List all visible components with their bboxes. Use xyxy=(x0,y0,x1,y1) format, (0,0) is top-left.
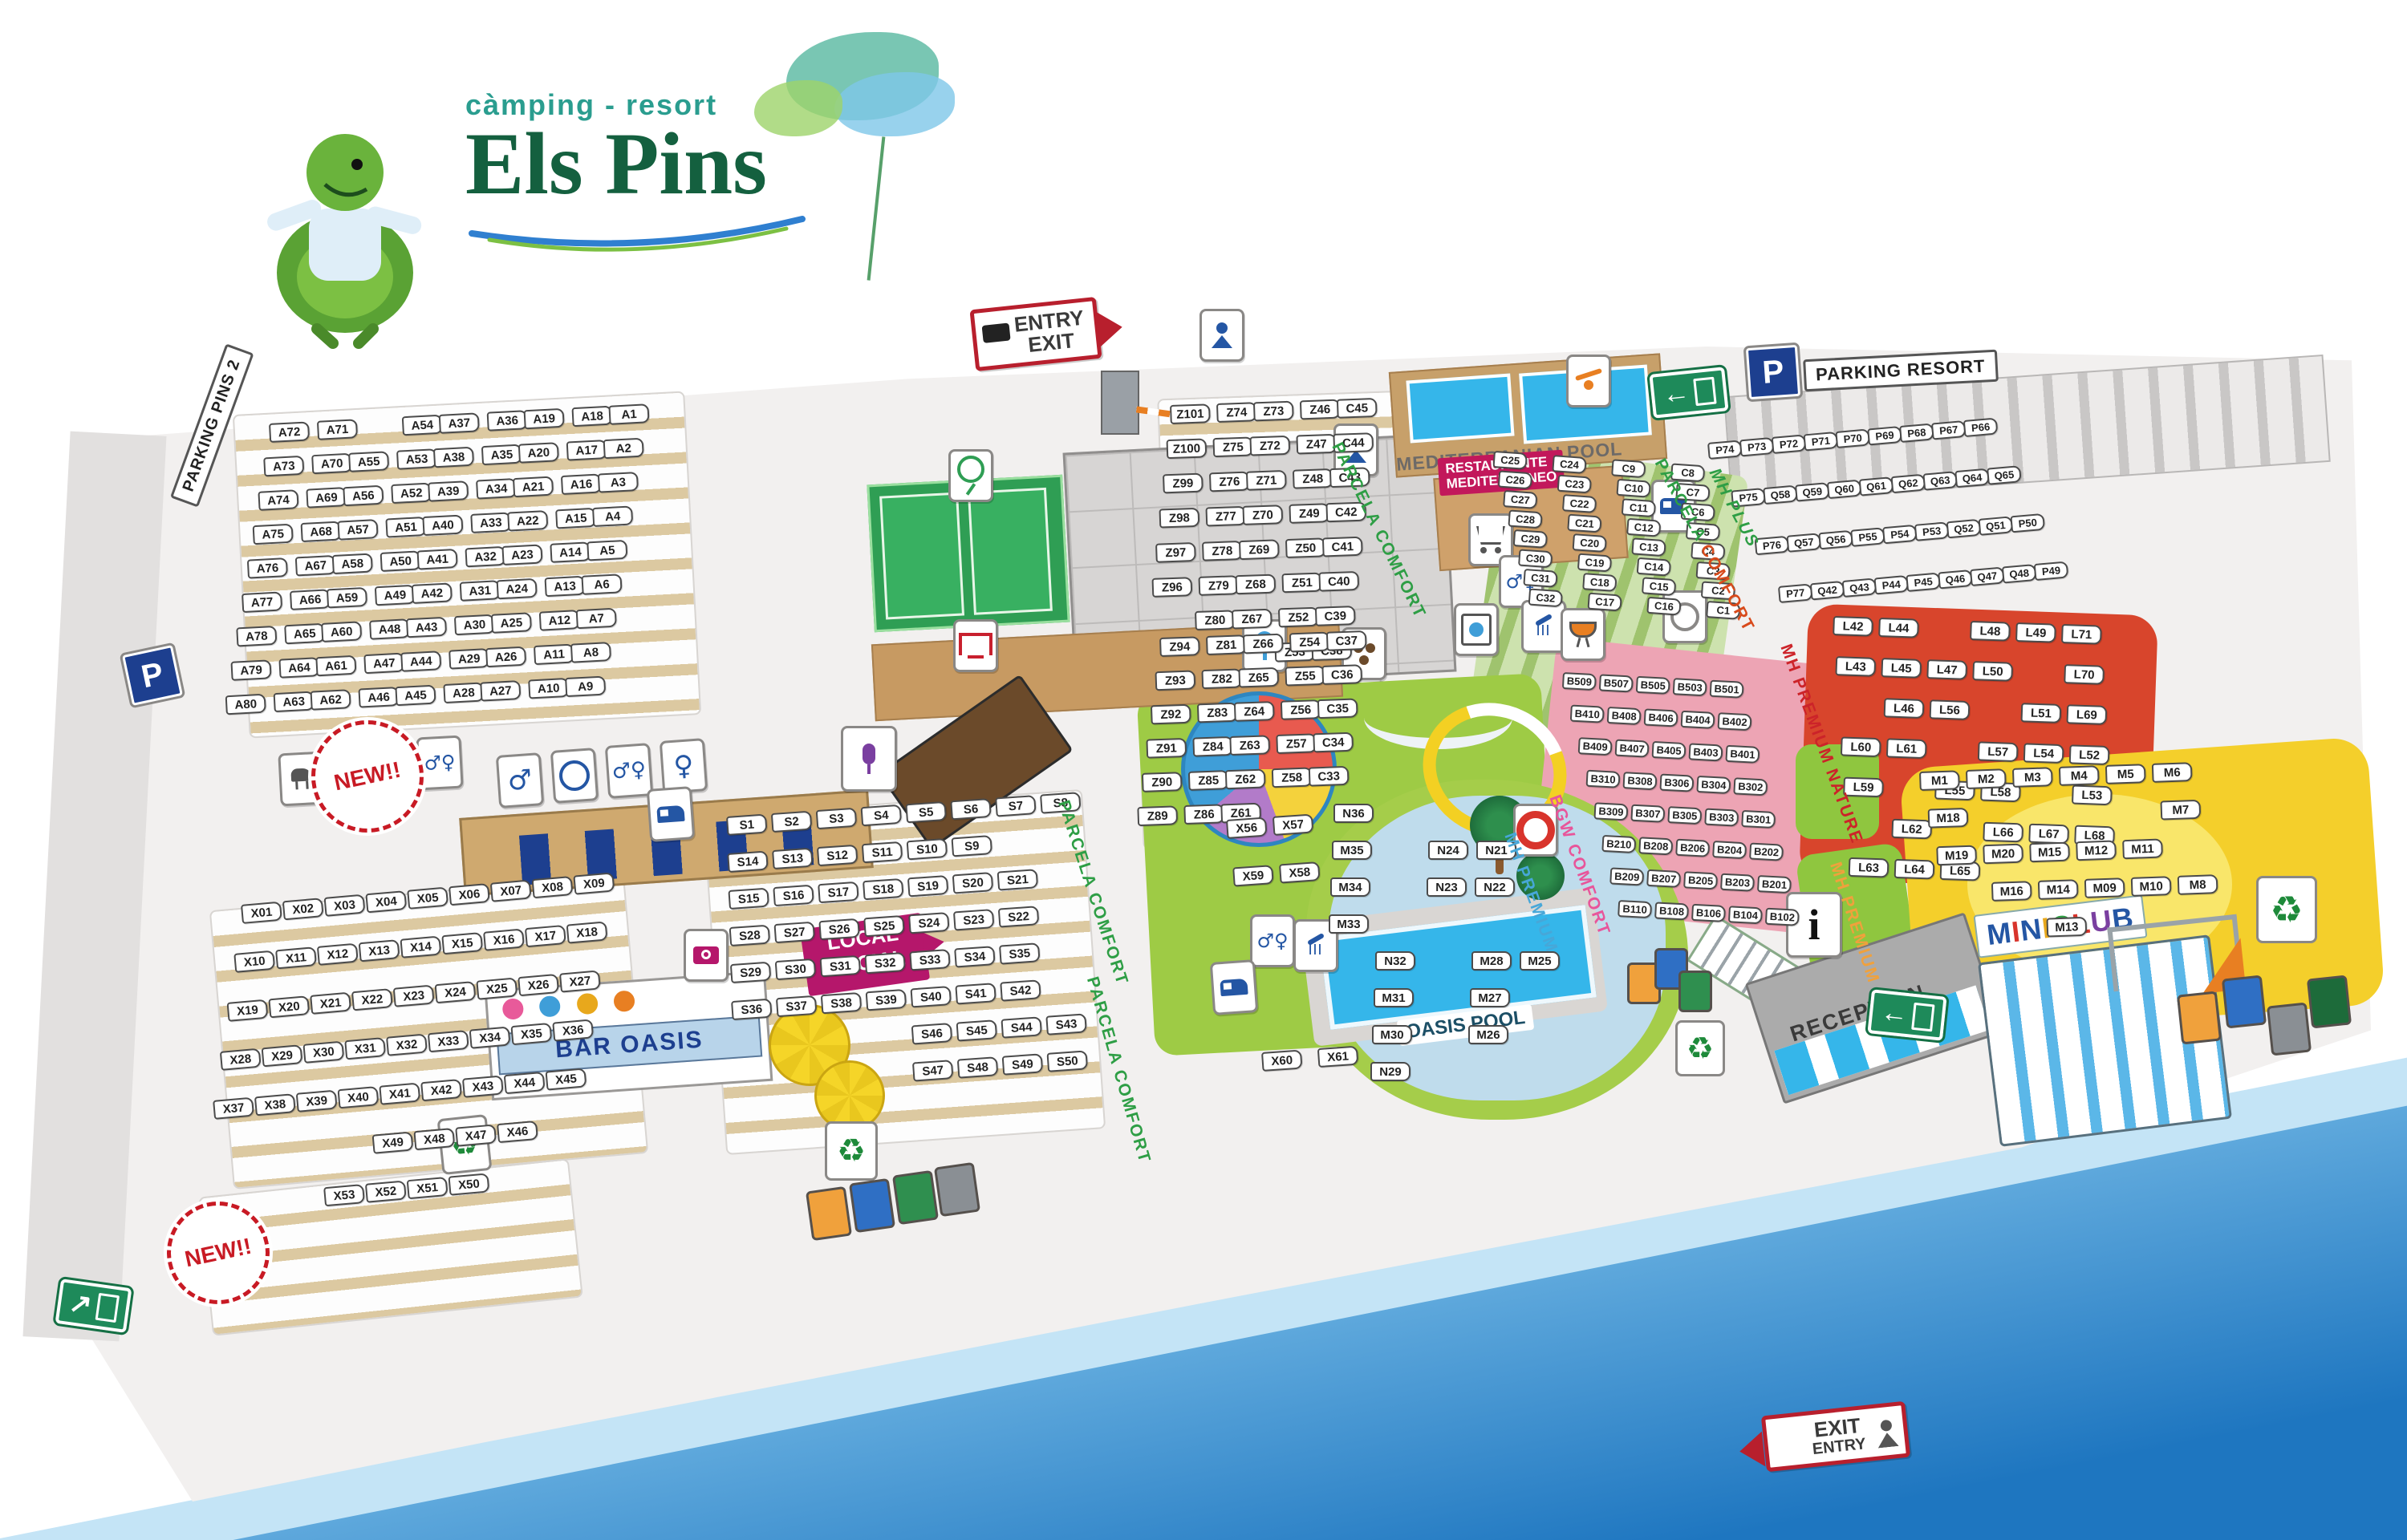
pitch-A10[interactable]: A10 xyxy=(528,678,569,699)
pitch-M8[interactable]: M8 xyxy=(2178,874,2218,895)
pitch-A19[interactable]: A19 xyxy=(524,408,565,430)
pitch-B208[interactable]: B208 xyxy=(1638,837,1673,855)
pitch-S27[interactable]: S27 xyxy=(774,922,816,943)
pitch-P72[interactable]: P72 xyxy=(1772,434,1807,454)
pitch-A53[interactable]: A53 xyxy=(396,448,437,470)
pitch-Q56[interactable]: Q56 xyxy=(1818,530,1853,550)
pitch-B102[interactable]: B102 xyxy=(1765,908,1800,926)
pitch-B405[interactable]: B405 xyxy=(1652,741,1687,760)
pitch-A5[interactable]: A5 xyxy=(587,540,627,561)
pitch-L70[interactable]: L70 xyxy=(2064,664,2105,685)
pitch-Q60[interactable]: Q60 xyxy=(1827,480,1862,500)
pitch-A69[interactable]: A69 xyxy=(306,487,347,509)
pitch-Z76[interactable]: Z76 xyxy=(1209,472,1250,492)
pitch-Z92[interactable]: Z92 xyxy=(1151,704,1191,725)
pitch-N36[interactable]: N36 xyxy=(1333,804,1374,823)
pitch-L62[interactable]: L62 xyxy=(1891,819,1932,840)
pitch-A38[interactable]: A38 xyxy=(433,447,474,468)
pitch-C14[interactable]: C14 xyxy=(1637,557,1671,577)
pitch-A61[interactable]: A61 xyxy=(315,655,356,677)
pitch-C15[interactable]: C15 xyxy=(1642,577,1676,596)
pitch-B505[interactable]: B505 xyxy=(1636,676,1670,695)
pitch-C24[interactable]: C24 xyxy=(1552,455,1586,474)
pitch-C22[interactable]: C22 xyxy=(1562,494,1597,513)
pitch-X42[interactable]: X42 xyxy=(420,1079,462,1101)
pitch-Z79[interactable]: Z79 xyxy=(1198,575,1239,596)
pitch-Z49[interactable]: Z49 xyxy=(1289,503,1329,524)
pitch-B204[interactable]: B204 xyxy=(1712,841,1747,859)
pitch-S28[interactable]: S28 xyxy=(729,925,771,946)
pitch-X27[interactable]: X27 xyxy=(559,970,601,992)
pitch-A32[interactable]: A32 xyxy=(465,546,505,568)
pitch-B108[interactable]: B108 xyxy=(1654,902,1689,920)
pitch-A29[interactable]: A29 xyxy=(449,648,489,670)
pitch-A16[interactable]: A16 xyxy=(561,473,602,495)
pitch-Z70[interactable]: Z70 xyxy=(1242,505,1283,525)
pitch-X34[interactable]: X34 xyxy=(469,1026,511,1048)
pitch-B306[interactable]: B306 xyxy=(1659,774,1694,792)
pitch-P66[interactable]: P66 xyxy=(1963,417,1999,437)
pitch-A71[interactable]: A71 xyxy=(317,419,358,440)
pitch-Z96[interactable]: Z96 xyxy=(1152,577,1193,598)
pitch-X39[interactable]: X39 xyxy=(296,1090,338,1112)
pitch-S47[interactable]: S47 xyxy=(912,1060,954,1081)
pitch-P73[interactable]: P73 xyxy=(1739,437,1775,457)
pitch-C41[interactable]: C41 xyxy=(1322,537,1363,557)
pitch-A56[interactable]: A56 xyxy=(343,485,384,507)
pitch-X50[interactable]: X50 xyxy=(449,1173,490,1195)
pitch-Z78[interactable]: Z78 xyxy=(1202,541,1243,561)
pitch-A8[interactable]: A8 xyxy=(570,642,611,663)
pitch-A36[interactable]: A36 xyxy=(487,410,528,432)
pitch-P69[interactable]: P69 xyxy=(1867,426,1902,446)
pitch-Z55[interactable]: Z55 xyxy=(1285,666,1325,687)
pitch-A25[interactable]: A25 xyxy=(491,612,532,634)
pitch-Z74[interactable]: Z74 xyxy=(1216,402,1257,423)
pitch-Z81[interactable]: Z81 xyxy=(1206,634,1247,655)
pitch-Z58[interactable]: Z58 xyxy=(1272,767,1313,788)
pitch-A54[interactable]: A54 xyxy=(402,415,443,436)
pitch-A14[interactable]: A14 xyxy=(550,541,591,563)
pitch-C29[interactable]: C29 xyxy=(1513,529,1548,549)
pitch-Z54[interactable]: Z54 xyxy=(1289,632,1330,653)
pitch-A62[interactable]: A62 xyxy=(311,689,351,711)
pitch-Z62[interactable]: Z62 xyxy=(1225,769,1266,790)
pitch-S13[interactable]: S13 xyxy=(772,848,814,869)
pitch-M16[interactable]: M16 xyxy=(1991,881,2032,902)
pitch-B210[interactable]: B210 xyxy=(1601,835,1636,853)
pitch-X48[interactable]: X48 xyxy=(413,1128,455,1150)
pitch-L48[interactable]: L48 xyxy=(1970,621,2011,642)
pitch-L43[interactable]: L43 xyxy=(1835,656,1876,677)
pitch-S50[interactable]: S50 xyxy=(1047,1050,1089,1072)
pitch-C20[interactable]: C20 xyxy=(1573,533,1607,553)
pitch-S19[interactable]: S19 xyxy=(907,875,949,897)
pitch-A64[interactable]: A64 xyxy=(278,657,319,679)
pitch-N22[interactable]: N22 xyxy=(1475,877,1515,897)
pitch-M35[interactable]: M35 xyxy=(1332,841,1372,860)
pitch-A51[interactable]: A51 xyxy=(385,517,426,538)
pitch-A49[interactable]: A49 xyxy=(375,585,416,606)
pitch-A27[interactable]: A27 xyxy=(480,680,521,702)
pitch-A28[interactable]: A28 xyxy=(443,682,484,703)
pitch-Q57[interactable]: Q57 xyxy=(1786,533,1821,553)
pitch-M12[interactable]: M12 xyxy=(2076,840,2117,861)
pitch-S4[interactable]: S4 xyxy=(861,804,903,826)
pitch-M27[interactable]: M27 xyxy=(1470,988,1510,1007)
pitch-X21[interactable]: X21 xyxy=(310,992,351,1015)
pitch-L47[interactable]: L47 xyxy=(1926,659,1967,680)
pitch-Z52[interactable]: Z52 xyxy=(1278,607,1319,628)
pitch-A44[interactable]: A44 xyxy=(400,650,441,672)
pitch-X08[interactable]: X08 xyxy=(532,876,574,898)
pitch-S3[interactable]: S3 xyxy=(816,808,858,829)
pitch-P49[interactable]: P49 xyxy=(2034,561,2069,581)
pitch-S34[interactable]: S34 xyxy=(954,946,996,967)
pitch-P44[interactable]: P44 xyxy=(1873,575,1909,595)
pitch-X24[interactable]: X24 xyxy=(435,981,477,1003)
pitch-X02[interactable]: X02 xyxy=(282,898,324,920)
pitch-S21[interactable]: S21 xyxy=(997,869,1039,890)
pitch-A13[interactable]: A13 xyxy=(545,576,586,598)
pitch-S35[interactable]: S35 xyxy=(999,942,1041,964)
pitch-S2[interactable]: S2 xyxy=(771,811,813,833)
pitch-S22[interactable]: S22 xyxy=(998,906,1040,927)
pitch-S32[interactable]: S32 xyxy=(864,952,906,974)
pitch-X16[interactable]: X16 xyxy=(483,928,525,950)
pitch-B501[interactable]: B501 xyxy=(1710,680,1744,699)
pitch-A21[interactable]: A21 xyxy=(513,476,554,498)
pitch-C25[interactable]: C25 xyxy=(1493,451,1528,470)
pitch-B402[interactable]: B402 xyxy=(1718,712,1752,731)
pitch-Z91[interactable]: Z91 xyxy=(1146,738,1187,759)
pitch-X10[interactable]: X10 xyxy=(233,950,275,973)
pitch-S31[interactable]: S31 xyxy=(820,955,862,977)
pitch-P53[interactable]: P53 xyxy=(1914,521,1950,541)
pitch-P68[interactable]: P68 xyxy=(1899,423,1934,443)
pitch-B406[interactable]: B406 xyxy=(1644,708,1678,727)
pitch-Z83[interactable]: Z83 xyxy=(1197,703,1238,723)
pitch-Z94[interactable]: Z94 xyxy=(1159,636,1200,657)
pitch-M5[interactable]: M5 xyxy=(2105,764,2146,784)
pitch-C26[interactable]: C26 xyxy=(1498,470,1532,489)
pitch-X41[interactable]: X41 xyxy=(379,1082,420,1104)
pitch-A6[interactable]: A6 xyxy=(581,573,622,595)
pitch-S43[interactable]: S43 xyxy=(1045,1013,1087,1035)
pitch-X31[interactable]: X31 xyxy=(344,1037,386,1060)
pitch-M33[interactable]: M33 xyxy=(1329,914,1369,934)
pitch-N23[interactable]: N23 xyxy=(1427,877,1467,897)
pitch-L57[interactable]: L57 xyxy=(1978,741,2019,762)
pitch-A39[interactable]: A39 xyxy=(428,480,469,502)
pitch-B202[interactable]: B202 xyxy=(1749,842,1784,861)
pitch-L71[interactable]: L71 xyxy=(2061,624,2102,645)
pitch-B205[interactable]: B205 xyxy=(1683,871,1718,890)
pitch-X45[interactable]: X45 xyxy=(546,1068,587,1090)
pitch-X38[interactable]: X38 xyxy=(254,1093,296,1116)
pitch-Z64[interactable]: Z64 xyxy=(1234,701,1275,722)
pitch-Q47[interactable]: Q47 xyxy=(1970,566,2005,586)
pitch-A74[interactable]: A74 xyxy=(258,489,298,511)
pitch-Q42[interactable]: Q42 xyxy=(1810,581,1845,601)
pitch-Z89[interactable]: Z89 xyxy=(1137,805,1178,826)
pitch-Z69[interactable]: Z69 xyxy=(1239,539,1280,560)
pitch-P50[interactable]: P50 xyxy=(2010,513,2045,533)
pitch-X46[interactable]: X46 xyxy=(497,1121,538,1143)
pitch-B209[interactable]: B209 xyxy=(1609,867,1644,885)
pitch-M1[interactable]: M1 xyxy=(1919,770,1960,791)
pitch-S24[interactable]: S24 xyxy=(908,912,950,934)
pitch-C37[interactable]: C37 xyxy=(1326,630,1367,651)
pitch-X32[interactable]: X32 xyxy=(386,1033,428,1056)
pitch-A4[interactable]: A4 xyxy=(592,505,633,527)
pitch-X58[interactable]: X58 xyxy=(1279,861,1321,883)
pitch-L66[interactable]: L66 xyxy=(1983,822,2023,843)
pitch-S18[interactable]: S18 xyxy=(863,878,904,900)
pitch-C31[interactable]: C31 xyxy=(1523,569,1557,588)
pitch-C23[interactable]: C23 xyxy=(1557,475,1592,494)
pitch-A34[interactable]: A34 xyxy=(476,478,517,500)
pitch-M30[interactable]: M30 xyxy=(1372,1025,1412,1044)
pitch-A40[interactable]: A40 xyxy=(422,515,463,537)
pitch-X09[interactable]: X09 xyxy=(573,872,615,894)
pitch-P71[interactable]: P71 xyxy=(1804,432,1839,452)
pitch-S42[interactable]: S42 xyxy=(1000,979,1041,1001)
pitch-L51[interactable]: L51 xyxy=(2021,703,2062,723)
pitch-M11[interactable]: M11 xyxy=(2122,838,2163,859)
pitch-A11[interactable]: A11 xyxy=(534,643,574,665)
pitch-S49[interactable]: S49 xyxy=(1002,1053,1044,1075)
pitch-A1[interactable]: A1 xyxy=(608,403,649,425)
pitch-X52[interactable]: X52 xyxy=(365,1180,407,1202)
pitch-B302[interactable]: B302 xyxy=(1733,777,1768,796)
pitch-B401[interactable]: B401 xyxy=(1725,745,1760,764)
pitch-Z86[interactable]: Z86 xyxy=(1183,804,1224,825)
pitch-A47[interactable]: A47 xyxy=(363,653,404,675)
pitch-C21[interactable]: C21 xyxy=(1567,514,1601,533)
pitch-Q61[interactable]: Q61 xyxy=(1859,476,1894,496)
pitch-Z46[interactable]: Z46 xyxy=(1300,399,1341,420)
pitch-X51[interactable]: X51 xyxy=(407,1177,449,1199)
pitch-P77[interactable]: P77 xyxy=(1778,583,1813,603)
pitch-A46[interactable]: A46 xyxy=(358,687,399,708)
pitch-Q59[interactable]: Q59 xyxy=(1795,482,1830,502)
pitch-X56[interactable]: X56 xyxy=(1226,817,1268,839)
pitch-M3[interactable]: M3 xyxy=(2012,767,2053,788)
pitch-X19[interactable]: X19 xyxy=(227,999,269,1022)
pitch-X15[interactable]: X15 xyxy=(441,932,483,954)
pitch-Q64[interactable]: Q64 xyxy=(1954,468,1990,488)
pitch-A65[interactable]: A65 xyxy=(284,623,325,645)
pitch-X17[interactable]: X17 xyxy=(525,925,566,947)
pitch-A41[interactable]: A41 xyxy=(417,549,458,570)
pitch-Z68[interactable]: Z68 xyxy=(1235,574,1276,595)
pitch-Q62[interactable]: Q62 xyxy=(1891,474,1926,494)
pitch-B410[interactable]: B410 xyxy=(1570,705,1605,723)
pitch-S16[interactable]: S16 xyxy=(773,885,814,906)
pitch-S30[interactable]: S30 xyxy=(775,958,817,980)
pitch-A80[interactable]: A80 xyxy=(225,694,266,715)
pitch-C17[interactable]: C17 xyxy=(1587,593,1622,612)
pitch-P74[interactable]: P74 xyxy=(1707,440,1743,460)
pitch-N29[interactable]: N29 xyxy=(1370,1062,1411,1081)
pitch-S6[interactable]: S6 xyxy=(950,798,992,820)
pitch-S1[interactable]: S1 xyxy=(726,814,768,836)
pitch-S12[interactable]: S12 xyxy=(817,845,858,866)
pitch-M14[interactable]: M14 xyxy=(2038,879,2079,900)
pitch-M10[interactable]: M10 xyxy=(2131,876,2172,897)
pitch-B104[interactable]: B104 xyxy=(1728,906,1763,924)
pitch-X26[interactable]: X26 xyxy=(518,974,559,996)
pitch-L61[interactable]: L61 xyxy=(1886,738,1927,759)
pitch-A35[interactable]: A35 xyxy=(481,444,522,466)
pitch-S23[interactable]: S23 xyxy=(953,909,995,930)
pitch-A78[interactable]: A78 xyxy=(236,626,277,647)
pitch-A63[interactable]: A63 xyxy=(274,691,315,713)
pitch-Q65[interactable]: Q65 xyxy=(1987,465,2022,485)
pitch-Q43[interactable]: Q43 xyxy=(1842,577,1877,598)
pitch-C40[interactable]: C40 xyxy=(1318,571,1359,592)
pitch-B304[interactable]: B304 xyxy=(1696,776,1731,794)
pitch-Z98[interactable]: Z98 xyxy=(1159,508,1200,529)
pitch-A58[interactable]: A58 xyxy=(332,553,373,574)
pitch-Z75[interactable]: Z75 xyxy=(1212,436,1253,457)
pitch-A37[interactable]: A37 xyxy=(439,412,480,434)
pitch-M6[interactable]: M6 xyxy=(2152,762,2193,783)
pitch-Z80[interactable]: Z80 xyxy=(1195,610,1236,630)
pitch-X53[interactable]: X53 xyxy=(323,1184,365,1206)
pitch-X61[interactable]: X61 xyxy=(1317,1046,1359,1068)
pitch-S11[interactable]: S11 xyxy=(862,841,903,863)
pitch-Z97[interactable]: Z97 xyxy=(1155,542,1196,563)
pitch-M31[interactable]: M31 xyxy=(1374,988,1414,1007)
pitch-Z67[interactable]: Z67 xyxy=(1232,609,1273,630)
pitch-P54[interactable]: P54 xyxy=(1882,525,1918,545)
pitch-C19[interactable]: C19 xyxy=(1577,553,1612,573)
pitch-M15[interactable]: M15 xyxy=(2029,842,2070,863)
pitch-A22[interactable]: A22 xyxy=(507,510,548,532)
pitch-P45[interactable]: P45 xyxy=(1906,572,1941,592)
pitch-B404[interactable]: B404 xyxy=(1681,711,1715,729)
pitch-Z101[interactable]: Z101 xyxy=(1170,403,1211,424)
pitch-C18[interactable]: C18 xyxy=(1582,573,1617,592)
pitch-B309[interactable]: B309 xyxy=(1593,802,1628,821)
pitch-B507[interactable]: B507 xyxy=(1599,674,1634,692)
pitch-S48[interactable]: S48 xyxy=(957,1056,999,1078)
pitch-M34[interactable]: M34 xyxy=(1330,877,1370,897)
pitch-C32[interactable]: C32 xyxy=(1528,588,1563,607)
pitch-X29[interactable]: X29 xyxy=(262,1044,303,1067)
pitch-A77[interactable]: A77 xyxy=(242,591,282,613)
pitch-B201[interactable]: B201 xyxy=(1757,875,1792,894)
pitch-X33[interactable]: X33 xyxy=(428,1030,469,1052)
pitch-M28[interactable]: M28 xyxy=(1471,951,1512,971)
pitch-Z99[interactable]: Z99 xyxy=(1163,473,1203,494)
pitch-S20[interactable]: S20 xyxy=(952,872,994,894)
pitch-A33[interactable]: A33 xyxy=(470,512,511,533)
pitch-S36[interactable]: S36 xyxy=(731,999,773,1020)
pitch-A75[interactable]: A75 xyxy=(253,524,294,545)
pitch-C16[interactable]: C16 xyxy=(1646,597,1681,616)
pitch-L42[interactable]: L42 xyxy=(1833,616,1873,637)
pitch-C30[interactable]: C30 xyxy=(1518,549,1553,568)
pitch-A30[interactable]: A30 xyxy=(454,614,495,636)
pitch-X59[interactable]: X59 xyxy=(1232,865,1274,886)
pitch-B307[interactable]: B307 xyxy=(1630,804,1665,823)
pitch-S15[interactable]: S15 xyxy=(728,888,769,910)
pitch-L50[interactable]: L50 xyxy=(1972,661,2013,682)
pitch-A23[interactable]: A23 xyxy=(501,544,542,565)
pitch-A3[interactable]: A3 xyxy=(598,472,639,493)
pitch-X12[interactable]: X12 xyxy=(317,943,359,966)
pitch-X44[interactable]: X44 xyxy=(504,1072,546,1094)
pitch-A26[interactable]: A26 xyxy=(485,646,526,668)
pitch-A20[interactable]: A20 xyxy=(518,442,559,464)
pitch-X49[interactable]: X49 xyxy=(372,1131,414,1153)
pitch-B407[interactable]: B407 xyxy=(1615,740,1650,758)
pitch-X20[interactable]: X20 xyxy=(268,995,310,1018)
pitch-A72[interactable]: A72 xyxy=(269,421,310,443)
pitch-X57[interactable]: X57 xyxy=(1273,813,1314,835)
pitch-S45[interactable]: S45 xyxy=(956,1019,998,1041)
pitch-X04[interactable]: X04 xyxy=(365,890,407,913)
pitch-S46[interactable]: S46 xyxy=(911,1023,953,1044)
pitch-S7[interactable]: S7 xyxy=(995,795,1037,817)
pitch-L53[interactable]: L53 xyxy=(2072,785,2113,806)
pitch-S41[interactable]: S41 xyxy=(955,983,996,1004)
pitch-S38[interactable]: S38 xyxy=(821,992,863,1014)
pitch-X35[interactable]: X35 xyxy=(510,1023,552,1045)
pitch-A73[interactable]: A73 xyxy=(263,456,304,477)
pitch-X47[interactable]: X47 xyxy=(455,1124,497,1146)
pitch-A42[interactable]: A42 xyxy=(412,582,453,604)
pitch-Z73[interactable]: Z73 xyxy=(1253,401,1294,422)
pitch-B203[interactable]: B203 xyxy=(1720,873,1755,892)
pitch-Z77[interactable]: Z77 xyxy=(1205,506,1246,527)
pitch-Z63[interactable]: Z63 xyxy=(1229,735,1270,756)
pitch-S25[interactable]: S25 xyxy=(863,915,905,937)
pitch-B106[interactable]: B106 xyxy=(1691,904,1726,922)
pitch-B206[interactable]: B206 xyxy=(1675,839,1710,857)
pitch-A59[interactable]: A59 xyxy=(327,587,367,609)
pitch-Z56[interactable]: Z56 xyxy=(1281,699,1321,720)
pitch-C13[interactable]: C13 xyxy=(1631,537,1666,557)
pitch-A76[interactable]: A76 xyxy=(247,557,288,579)
pitch-L64[interactable]: L64 xyxy=(1894,859,1935,880)
pitch-X60[interactable]: X60 xyxy=(1261,1050,1303,1072)
pitch-X14[interactable]: X14 xyxy=(400,936,441,958)
pitch-C27[interactable]: C27 xyxy=(1503,490,1537,509)
pitch-X07[interactable]: X07 xyxy=(490,879,532,902)
pitch-P55[interactable]: P55 xyxy=(1850,527,1885,547)
pitch-X01[interactable]: X01 xyxy=(241,902,282,924)
pitch-Q51[interactable]: Q51 xyxy=(1979,516,2014,536)
pitch-C36[interactable]: C36 xyxy=(1321,664,1362,685)
pitch-A60[interactable]: A60 xyxy=(321,621,362,642)
pitch-A7[interactable]: A7 xyxy=(576,608,617,630)
pitch-M25[interactable]: M25 xyxy=(1520,951,1560,971)
pitch-A66[interactable]: A66 xyxy=(290,589,331,610)
pitch-L46[interactable]: L46 xyxy=(1884,698,1925,719)
pitch-Q46[interactable]: Q46 xyxy=(1938,569,1973,590)
pitch-S37[interactable]: S37 xyxy=(776,995,818,1017)
pitch-Z85[interactable]: Z85 xyxy=(1188,770,1229,791)
pitch-Z72[interactable]: Z72 xyxy=(1249,436,1290,456)
pitch-X37[interactable]: X37 xyxy=(213,1097,254,1120)
pitch-S26[interactable]: S26 xyxy=(818,918,860,940)
pitch-Z65[interactable]: Z65 xyxy=(1238,667,1279,688)
pitch-Z51[interactable]: Z51 xyxy=(1281,573,1322,594)
